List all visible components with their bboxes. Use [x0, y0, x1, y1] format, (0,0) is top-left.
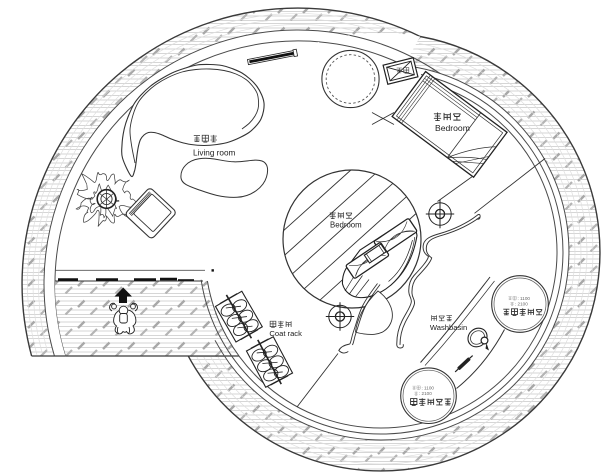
svg-text:: 2100: : 2100 — [515, 302, 528, 307]
svg-text:Washbasin: Washbasin — [430, 323, 467, 332]
svg-text:Bedroom: Bedroom — [435, 123, 470, 133]
svg-text:Bedroom: Bedroom — [330, 221, 362, 230]
svg-text:Living room: Living room — [193, 149, 236, 158]
svg-text:: 2100: : 2100 — [419, 391, 432, 396]
svg-text:: 1100: : 1100 — [518, 296, 531, 301]
svg-text:Coat rack: Coat rack — [269, 329, 302, 338]
svg-text:: 1100: : 1100 — [422, 386, 435, 391]
